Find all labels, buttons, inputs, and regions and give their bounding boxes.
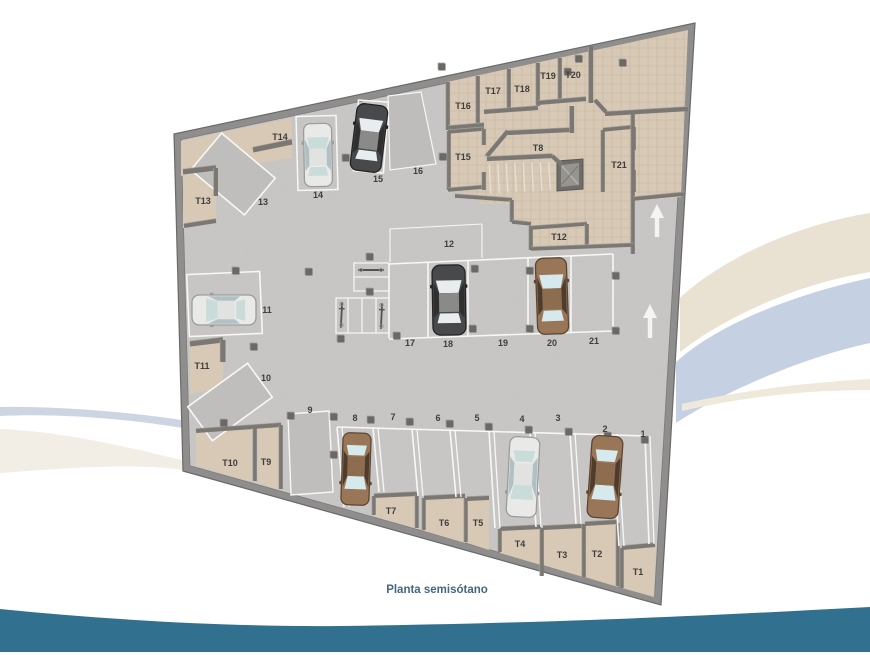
svg-text:T13: T13 [195,196,211,206]
svg-text:T6: T6 [439,518,450,528]
svg-text:10: 10 [261,373,271,383]
svg-text:14: 14 [313,190,323,200]
svg-text:T7: T7 [386,506,397,516]
svg-text:T9: T9 [261,457,272,467]
svg-text:T1: T1 [633,567,644,577]
svg-text:3: 3 [555,413,560,423]
svg-text:T5: T5 [473,518,484,528]
svg-text:18: 18 [443,339,453,349]
svg-text:T19: T19 [540,71,556,81]
svg-text:5: 5 [474,413,479,423]
svg-text:7: 7 [390,412,395,422]
svg-text:T8: T8 [533,143,544,153]
svg-text:T16: T16 [455,101,471,111]
svg-text:12: 12 [444,239,454,249]
svg-text:4: 4 [519,414,524,424]
svg-text:T4: T4 [515,539,526,549]
svg-text:T12: T12 [551,232,567,242]
svg-text:T18: T18 [514,84,530,94]
svg-text:16: 16 [413,166,423,176]
svg-text:T14: T14 [272,132,288,142]
svg-text:17: 17 [405,338,415,348]
svg-text:20: 20 [547,338,557,348]
svg-text:19: 19 [498,338,508,348]
svg-text:13: 13 [258,197,268,207]
svg-text:15: 15 [373,174,383,184]
svg-text:T11: T11 [194,361,209,371]
svg-text:Planta semisótano: Planta semisótano [386,584,488,596]
svg-text:T17: T17 [485,86,501,96]
svg-text:1: 1 [640,429,645,439]
svg-text:6: 6 [435,413,440,423]
svg-text:2: 2 [602,424,607,434]
svg-text:11: 11 [262,305,272,315]
svg-text:8: 8 [352,413,357,423]
svg-text:T10: T10 [222,458,238,468]
svg-text:9: 9 [307,405,312,415]
svg-text:T3: T3 [557,550,568,560]
svg-text:T20: T20 [565,70,581,80]
svg-text:T21: T21 [611,160,627,170]
svg-text:T15: T15 [455,152,471,162]
svg-text:21: 21 [589,336,599,346]
svg-text:T2: T2 [592,549,603,559]
